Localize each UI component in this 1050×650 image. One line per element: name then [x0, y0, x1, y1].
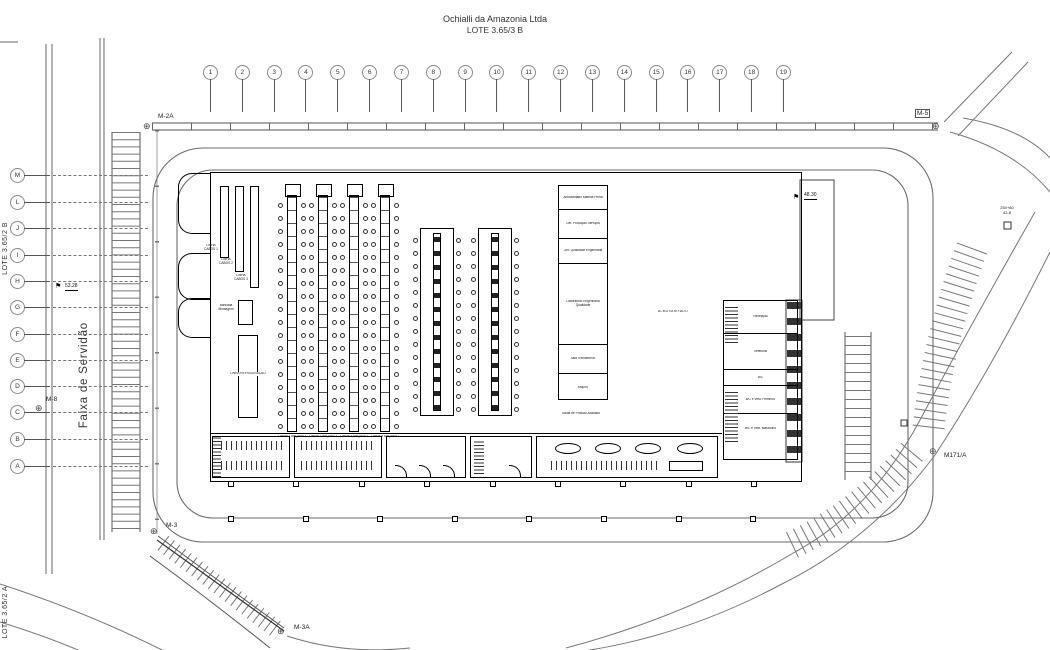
rack-column-circle: [363, 268, 368, 273]
meeting-table: [595, 443, 621, 454]
unit-column-circle: [456, 303, 461, 308]
rack-column-circle: [278, 411, 283, 416]
grid-row-line: [24, 334, 50, 335]
right-room-label: WC e Vest. Masculino: [745, 427, 776, 431]
rack-column-circle: [309, 411, 314, 416]
grid-column-bubble: 1: [203, 65, 218, 80]
rack-column-circle: [332, 333, 337, 338]
door-swing: [443, 465, 455, 477]
unit-column-circle: [456, 238, 461, 243]
unit-column-circle: [456, 316, 461, 321]
office-block-d: [470, 436, 532, 478]
rack-column-circle: [309, 268, 314, 273]
rack-column-circle: [394, 385, 399, 390]
unit-column-circle: [413, 264, 418, 269]
column-marker: [424, 481, 430, 487]
grid-column-bubble: 14: [617, 65, 632, 80]
station-line2: 42-8: [984, 211, 1030, 216]
survey-marker-label: M-2A: [158, 113, 174, 120]
rack-column-circle: [301, 385, 306, 390]
west-pod-1: [178, 173, 211, 234]
rack-column-circle: [301, 242, 306, 247]
rack-column-circle: [301, 411, 306, 416]
unit-column-circle: [456, 277, 461, 282]
cable-rack-label: LINHA CABOS 1: [202, 244, 220, 252]
west-pod-3: [178, 298, 211, 338]
rack-column-circle: [340, 216, 345, 221]
rack-column-circle: [394, 268, 399, 273]
unit-column-circle: [471, 355, 476, 360]
unit-column-circle: [456, 342, 461, 347]
column-marker: [555, 481, 561, 487]
grid-row-bubble: E: [10, 353, 25, 368]
rack-column-circle: [332, 229, 337, 234]
unit-column-circle: [456, 329, 461, 334]
grid-row-bubble: B: [10, 432, 25, 447]
door-swing: [419, 465, 431, 477]
unit-column-circle: [471, 394, 476, 399]
unit-column-circle: [514, 407, 519, 412]
mid-room-label: Sala Treinamento: [571, 357, 596, 361]
rack-column-circle: [371, 255, 376, 260]
rack-column-circle: [394, 398, 399, 403]
rack-column-circle: [278, 242, 283, 247]
grid-column-bubble: 8: [426, 65, 441, 80]
rack-column-circle: [309, 372, 314, 377]
mid-room: Almoxarifado Matéria Prima: [559, 186, 607, 209]
survey-marker-label: M-3A: [294, 624, 310, 631]
rack-column-circle: [340, 307, 345, 312]
unit-column-circle: [471, 290, 476, 295]
unit-column-circle: [471, 264, 476, 269]
production-unit-machines: [491, 233, 499, 411]
rack-column-circle: [278, 333, 283, 338]
survey-marker-symbol: ⊕: [150, 527, 158, 536]
grid-row-line: [53, 175, 148, 176]
lot-number: LOTE 3.65/3 B: [330, 25, 660, 36]
desk-row: [551, 461, 661, 470]
grid-column-line: [687, 79, 688, 112]
mid-room: Laboratório Engenharia Qualidade: [559, 263, 607, 344]
grid-column-line: [751, 79, 752, 112]
unit-column-circle: [471, 238, 476, 243]
unit-column-circle: [471, 277, 476, 282]
unit-column-circle: [413, 238, 418, 243]
rack-column-circle: [301, 320, 306, 325]
grid-column-line: [560, 79, 561, 112]
rack-column-circle: [332, 242, 337, 247]
grid-row-line: [53, 255, 148, 256]
rack-column-circle: [332, 346, 337, 351]
rack-column-circle: [394, 333, 399, 338]
rack-column-circle: [363, 333, 368, 338]
rack-column-circle: [340, 255, 345, 260]
rack-column-circle: [309, 255, 314, 260]
rack-column-circle: [309, 216, 314, 221]
rack-line-label: LINHA 2 ARQUIVO: [307, 435, 339, 439]
rack-line-label: LINHA 3 ARQUIVO: [338, 435, 370, 439]
stairs-hatch-4: [474, 440, 484, 474]
grid-row-line: [53, 360, 148, 361]
unit-column-circle: [456, 368, 461, 373]
unit-column-circle: [471, 381, 476, 386]
elevation-flag-icon: ⚑: [793, 194, 799, 201]
grid-row-line: [53, 228, 148, 229]
unit-column-circle: [413, 342, 418, 347]
grid-row-bubble: G: [10, 300, 25, 315]
column-marker: [751, 481, 757, 487]
rack-column-circle: [278, 359, 283, 364]
unit-column-circle: [413, 394, 418, 399]
stairs-hatch-3: [213, 437, 221, 477]
right-room-label: Recepção: [753, 315, 767, 319]
mid-strip-note: Saída de Produto Acabado: [544, 412, 618, 416]
rack-column-circle: [340, 229, 345, 234]
mid-room-label: Ger. Qualidade Engenharia: [564, 249, 603, 253]
desk-row: [301, 441, 375, 450]
rack-column-circle: [340, 203, 345, 208]
storage-rack: [380, 195, 390, 432]
elevation-value: 53.28: [65, 284, 78, 291]
survey-marker-label: M-8: [46, 396, 57, 403]
rack-column-circle: [309, 307, 314, 312]
grid-column-line: [656, 79, 657, 112]
rack-column-circle: [340, 268, 345, 273]
unit-column-circle: [471, 368, 476, 373]
grid-row-line: [24, 202, 50, 203]
grid-row-line: [53, 412, 148, 413]
rack-column-circle: [371, 346, 376, 351]
rack-column-circle: [301, 216, 306, 221]
rack-column-circle: [309, 398, 314, 403]
rack-column-circle: [340, 333, 345, 338]
rack-column-circle: [332, 411, 337, 416]
right-room-label: WC: [758, 376, 763, 380]
door-swing: [509, 465, 521, 477]
rack-column-circle: [394, 216, 399, 221]
grid-column-bubble: 7: [394, 65, 409, 80]
unit-column-circle: [514, 394, 519, 399]
rack-column-circle: [363, 294, 368, 299]
rack-column-circle: [371, 203, 376, 208]
survey-marker-label: M-3: [166, 522, 177, 529]
rack-column-circle: [309, 346, 314, 351]
rack-column-circle: [332, 294, 337, 299]
rack-column-circle: [363, 398, 368, 403]
unit-column-circle: [514, 238, 519, 243]
rack-column-circle: [301, 359, 306, 364]
office-band-wall: [210, 433, 722, 434]
rack-column-circle: [340, 294, 345, 299]
desk-row: [221, 461, 285, 470]
west-pod-2: [178, 253, 211, 300]
storage-rack: [318, 195, 328, 432]
rack-column-circle: [301, 424, 306, 429]
rack-column-circle: [371, 333, 376, 338]
column-marker: [452, 516, 458, 522]
rack-column-circle: [394, 359, 399, 364]
grid-column-line: [242, 79, 243, 112]
rack-column-circle: [301, 346, 306, 351]
grid-row-bubble: A: [10, 459, 25, 474]
rack-column-circle: [332, 216, 337, 221]
rack-column-circle: [340, 320, 345, 325]
right-room-label: WC e Vest. Feminino: [746, 398, 776, 402]
rack-column-circle: [332, 203, 337, 208]
unit-column-circle: [413, 407, 418, 412]
rack-column-circle: [309, 320, 314, 325]
rack-column-circle: [371, 411, 376, 416]
unit-column-circle: [514, 342, 519, 347]
grid-row-bubble: C: [10, 405, 25, 420]
grid-row-line: [24, 255, 50, 256]
grid-column-line: [210, 79, 211, 112]
mid-rooms-strip: Almoxarifado Matéria PrimaGer. Produção …: [558, 185, 608, 400]
unit-column-circle: [514, 290, 519, 295]
rack-column-circle: [394, 372, 399, 377]
grid-column-line: [274, 79, 275, 112]
unit-column-circle: [471, 407, 476, 412]
rack-column-circle: [371, 372, 376, 377]
rack-column-circle: [394, 307, 399, 312]
rack-column-circle: [363, 242, 368, 247]
unit-column-circle: [413, 303, 418, 308]
rack-column-circle: [371, 307, 376, 312]
rack-column-circle: [309, 333, 314, 338]
unit-column-circle: [471, 251, 476, 256]
rack-column-circle: [278, 385, 283, 390]
rack-column-circle: [301, 398, 306, 403]
rack-column-circle: [363, 307, 368, 312]
rack-column-circle: [332, 307, 337, 312]
small-workbench-box: [238, 300, 253, 325]
rack-column-circle: [301, 281, 306, 286]
rack-column-circle: [363, 203, 368, 208]
meeting-table: [635, 443, 661, 454]
rack-column-circle: [332, 359, 337, 364]
rack-column-circle: [301, 333, 306, 338]
rack-column-circle: [309, 385, 314, 390]
rack-column-circle: [301, 268, 306, 273]
survey-marker-symbol: ⊕: [932, 122, 940, 131]
grid-row-bubble: H: [10, 274, 25, 289]
column-marker: [359, 481, 365, 487]
rack-column-circle: [278, 229, 283, 234]
rack-column-circle: [371, 268, 376, 273]
tall-line-box: [238, 335, 258, 418]
rack-column-circle: [340, 398, 345, 403]
rack-column-circle: [363, 229, 368, 234]
rack-column-circle: [363, 216, 368, 221]
grid-row-line: [53, 307, 148, 308]
unit-column-circle: [471, 316, 476, 321]
rack-column-circle: [278, 294, 283, 299]
rack-column-circle: [371, 229, 376, 234]
rack-column-circle: [278, 203, 283, 208]
grid-row-line: [53, 386, 148, 387]
rack-column-circle: [363, 372, 368, 377]
desk-row: [301, 461, 375, 470]
column-marker: [686, 481, 692, 487]
meeting-table: [555, 443, 581, 454]
stairs-hatch-1: [725, 305, 738, 343]
small-box-label: Bancada Montagem: [214, 304, 238, 312]
rack-column-circle: [371, 320, 376, 325]
rack-column-circle: [340, 242, 345, 247]
column-marker: [228, 516, 234, 522]
right-room-label: Refeitório: [754, 350, 768, 354]
survey-marker-symbol: ⊕: [35, 404, 43, 413]
rack-column-circle: [278, 372, 283, 377]
grid-row-bubble: J: [10, 221, 25, 236]
right-room: WC: [724, 369, 797, 385]
unit-column-circle: [413, 355, 418, 360]
rack-column-circle: [394, 320, 399, 325]
rack-column-circle: [309, 359, 314, 364]
grid-row-bubble: I: [10, 248, 25, 263]
rack-column-circle: [394, 346, 399, 351]
rack-column-circle: [309, 242, 314, 247]
mid-room-label: Arquivo: [578, 386, 589, 390]
rack-column-circle: [340, 385, 345, 390]
rack-column-circle: [371, 359, 376, 364]
survey-marker-symbol: ⊕: [929, 447, 937, 456]
rack-column-circle: [278, 398, 283, 403]
unit-column-circle: [413, 381, 418, 386]
elevation-value: 48.30: [804, 193, 817, 200]
rack-column-circle: [309, 229, 314, 234]
rack-column-circle: [340, 359, 345, 364]
rack-column-circle: [278, 268, 283, 273]
survey-marker-symbol: ⊕: [277, 627, 285, 636]
grid-column-bubble: 19: [776, 65, 791, 80]
rack-column-circle: [301, 255, 306, 260]
grid-row-line: [53, 281, 148, 282]
rack-column-circle: [309, 281, 314, 286]
tall-box-label: LINHA REFRIGERAÇÃO: [226, 372, 270, 376]
mid-room: Ger. Qualidade Engenharia: [559, 238, 607, 263]
rack-column-circle: [332, 398, 337, 403]
cable-rack: [250, 186, 259, 288]
rack-column-circle: [363, 359, 368, 364]
grid-column-line: [783, 79, 784, 112]
grid-row-line: [24, 175, 50, 176]
rack-column-circle: [309, 294, 314, 299]
mid-room: Ger. Produção Serviços: [559, 209, 607, 238]
column-marker: [526, 516, 532, 522]
rack-column-circle: [371, 216, 376, 221]
unit-column-circle: [514, 329, 519, 334]
lote-bottom-left-label: LOTE 3.65/2 A: [2, 586, 9, 638]
rack-column-circle: [278, 320, 283, 325]
unit-column-circle: [471, 342, 476, 347]
grid-column-line: [401, 79, 402, 112]
rack-column-circle: [371, 294, 376, 299]
unit-column-circle: [514, 355, 519, 360]
rack-column-circle: [309, 203, 314, 208]
rack-column-circle: [301, 229, 306, 234]
rack-column-circle: [332, 320, 337, 325]
unit-column-circle: [413, 368, 418, 373]
grid-row-line: [24, 281, 50, 282]
survey-marker-symbol: ⊕: [143, 122, 151, 131]
cable-rack-label: LINHA CABOS 2: [217, 258, 235, 266]
grid-row-bubble: M: [10, 168, 25, 183]
unit-column-circle: [413, 316, 418, 321]
grid-column-line: [528, 79, 529, 112]
storage-rack: [287, 195, 297, 432]
company-name: Ochialli da Amazonia Ltda: [330, 14, 660, 25]
unit-column-circle: [514, 251, 519, 256]
grid-row-line: [24, 228, 50, 229]
unit-column-circle: [514, 381, 519, 386]
unit-column-circle: [456, 394, 461, 399]
rack-column-circle: [371, 398, 376, 403]
rack-column-circle: [394, 229, 399, 234]
office-block-e: [536, 436, 718, 478]
grid-column-line: [465, 79, 466, 112]
rack-line-label: LINHA 4 ARQUIVO: [369, 435, 401, 439]
grid-row-bubble: D: [10, 379, 25, 394]
rack-column-circle: [394, 242, 399, 247]
rack-column-circle: [332, 268, 337, 273]
unit-column-circle: [413, 329, 418, 334]
mid-room-label: Laboratório Engenharia Qualidade: [560, 300, 606, 308]
rack-column-circle: [301, 203, 306, 208]
rack-column-circle: [394, 203, 399, 208]
storage-area-label: ALMOXARIFADO: [638, 310, 708, 314]
rack-column-circle: [332, 281, 337, 286]
unit-column-circle: [413, 290, 418, 295]
unit-column-circle: [514, 277, 519, 282]
production-unit-machines: [433, 233, 441, 411]
unit-column-circle: [456, 251, 461, 256]
unit-column-circle: [514, 316, 519, 321]
rack-column-circle: [340, 346, 345, 351]
column-marker: [377, 516, 383, 522]
unit-column-circle: [456, 290, 461, 295]
unit-column-circle: [413, 251, 418, 256]
unit-column-circle: [514, 264, 519, 269]
grid-column-line: [592, 79, 593, 112]
mid-room: Arquivo: [559, 373, 607, 401]
unit-column-circle: [471, 329, 476, 334]
grid-column-bubble: 9: [458, 65, 473, 80]
rack-column-circle: [278, 307, 283, 312]
column-marker: [601, 516, 607, 522]
grid-column-line: [624, 79, 625, 112]
rack-column-circle: [394, 255, 399, 260]
lote-left-label: LOTE 3.65/2 B: [2, 222, 9, 275]
rack-column-circle: [363, 255, 368, 260]
grid-row-line: [53, 334, 148, 335]
mid-room-label: Ger. Produção Serviços: [566, 222, 600, 226]
rack-column-circle: [371, 424, 376, 429]
grid-column-bubble: 13: [585, 65, 600, 80]
unit-column-circle: [456, 407, 461, 412]
grid-row-bubble: L: [10, 195, 25, 210]
rack-column-circle: [332, 385, 337, 390]
rack-column-circle: [371, 385, 376, 390]
rack-column-circle: [363, 281, 368, 286]
office-block-c: [386, 436, 466, 478]
rack-column-circle: [371, 242, 376, 247]
office-block-a: [212, 436, 290, 478]
grid-column-bubble: 3: [267, 65, 282, 80]
grid-column-line: [305, 79, 306, 112]
rack-column-circle: [309, 424, 314, 429]
rack-column-circle: [363, 346, 368, 351]
